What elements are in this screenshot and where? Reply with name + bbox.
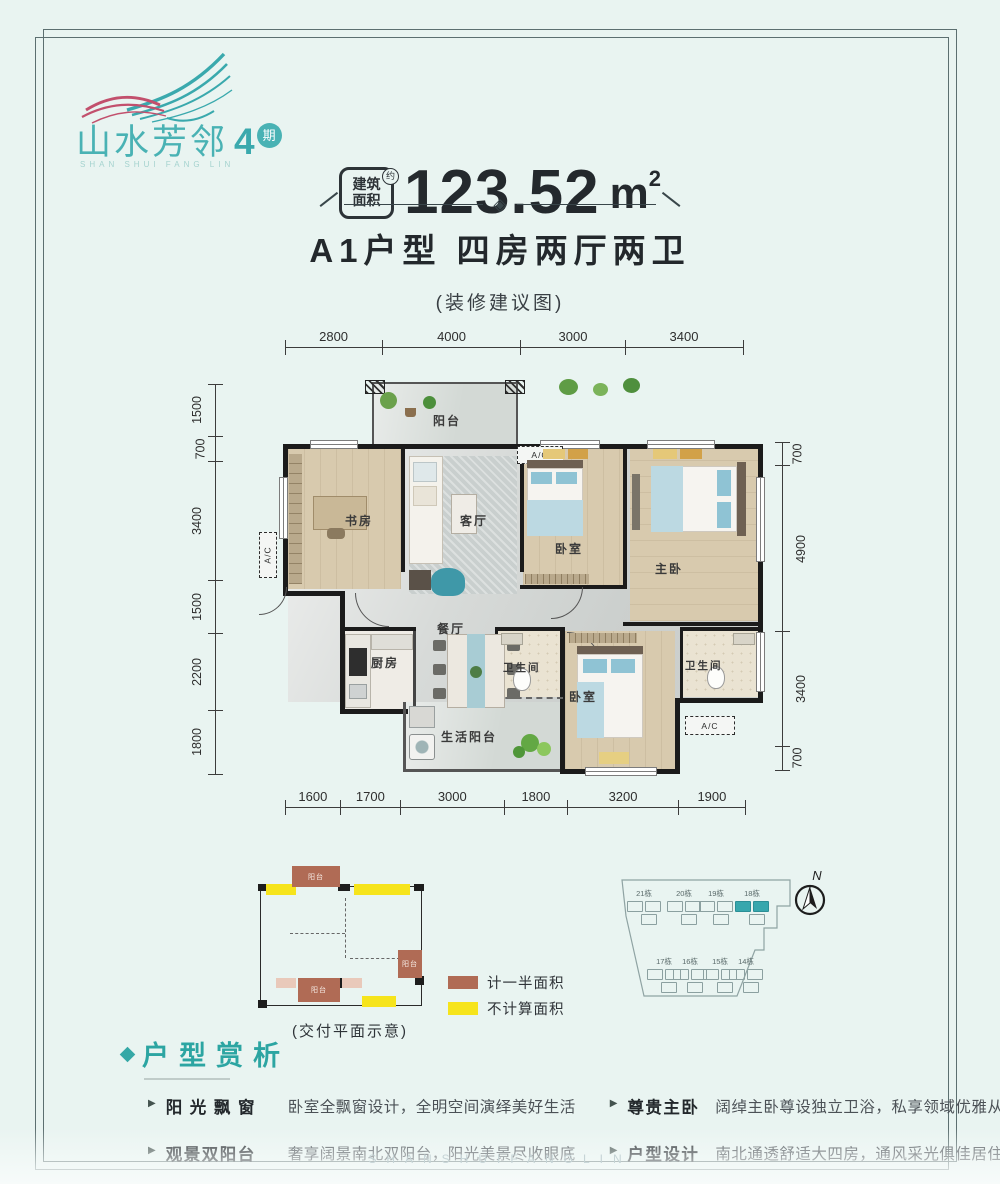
mini-dash bbox=[290, 933, 345, 934]
window bbox=[647, 440, 715, 449]
wall-segment bbox=[340, 709, 408, 714]
cooktop bbox=[349, 648, 367, 676]
room-label-study: 书房 bbox=[345, 512, 373, 529]
mini-yellow-block bbox=[354, 884, 410, 895]
area-unit: m2 bbox=[610, 166, 661, 219]
dining-chair bbox=[433, 688, 446, 699]
room-label-utility: 生活阳台 bbox=[441, 728, 497, 745]
building-cluster-highlighted: 18栋 bbox=[732, 888, 772, 930]
laundry-sink bbox=[409, 706, 435, 728]
approx-mark: 约 bbox=[382, 168, 399, 185]
logo: 山水芳邻4期 SHAN SHUI FANG LIN bbox=[68, 48, 318, 168]
wall-segment bbox=[401, 444, 405, 572]
sofa-cushion bbox=[413, 462, 437, 482]
mini-outline bbox=[260, 886, 422, 1006]
pillow bbox=[717, 470, 731, 496]
plant bbox=[513, 746, 525, 758]
area-value: 123.52 bbox=[404, 157, 600, 228]
mini-wall-block bbox=[414, 884, 424, 891]
blanket bbox=[527, 500, 583, 536]
column bbox=[505, 380, 525, 394]
sink bbox=[733, 633, 755, 645]
plant bbox=[559, 379, 578, 395]
window bbox=[756, 477, 765, 562]
wall-segment bbox=[675, 700, 680, 774]
room-label-kitchen: 厨房 bbox=[371, 654, 399, 671]
wall-segment bbox=[495, 697, 563, 699]
window bbox=[279, 477, 288, 539]
room-label-living: 客厅 bbox=[460, 512, 488, 529]
plant bbox=[423, 396, 436, 409]
bench-pillow bbox=[599, 752, 629, 764]
tv-cabinet bbox=[632, 474, 640, 530]
bed-headboard bbox=[737, 462, 746, 536]
wall-segment bbox=[495, 627, 565, 631]
mini-brown-balcony: 阳台 bbox=[292, 866, 340, 887]
wall-segment bbox=[680, 627, 763, 631]
window bbox=[585, 767, 657, 776]
building-cluster: 14栋 bbox=[726, 956, 766, 998]
feature-item: ▶ 阳 光 飘 窗 卧室全飘窗设计，全明空间演绎美好生活 bbox=[148, 1094, 576, 1118]
centerpiece bbox=[470, 666, 482, 678]
kitchen-sink bbox=[349, 684, 367, 699]
wardrobe bbox=[569, 633, 637, 643]
wall-segment bbox=[283, 591, 345, 596]
legend-no-area: 不计算面积 bbox=[448, 998, 565, 1019]
bay-window-pillow bbox=[680, 449, 702, 459]
mini-brown-balcony: 阳台 bbox=[398, 950, 422, 978]
legend-swatch-yellow bbox=[448, 1002, 478, 1015]
analysis-title: 户型赏析 bbox=[142, 1034, 290, 1073]
plant bbox=[380, 392, 397, 409]
bed-headboard bbox=[577, 646, 643, 654]
mini-pink-block bbox=[276, 978, 296, 988]
room-label-bath2: 卫生间 bbox=[685, 658, 723, 673]
bay-window-pillow bbox=[653, 449, 677, 459]
logo-phase: 4 bbox=[234, 121, 255, 162]
poster-page: 山水芳邻4期 SHAN SHUI FANG LIN 建筑 面积 约 123.52… bbox=[0, 0, 1000, 1184]
sofa-cushion bbox=[413, 486, 437, 506]
room-label-bath1: 卫生间 bbox=[503, 660, 541, 675]
legend-swatch-brown bbox=[448, 976, 478, 989]
room-label-balcony: 阳台 bbox=[433, 412, 461, 429]
unit-title: A1户型 四房两厅两卫 bbox=[309, 232, 690, 269]
area-badge: 建筑 面积 约 bbox=[339, 167, 394, 219]
column bbox=[365, 380, 385, 394]
header: 建筑 面积 约 123.52 m2 bbox=[0, 157, 1000, 228]
wall-segment bbox=[623, 622, 763, 626]
mini-pink-block bbox=[342, 978, 362, 988]
mini-dash bbox=[350, 958, 400, 959]
mini-yellow-block bbox=[362, 996, 396, 1007]
washer bbox=[409, 734, 435, 760]
door-arc bbox=[259, 587, 287, 615]
compass-icon bbox=[793, 883, 827, 917]
desk-chair bbox=[327, 528, 345, 539]
title-underline bbox=[144, 1078, 230, 1080]
wall-segment bbox=[680, 627, 683, 700]
building-cluster: 21栋 bbox=[624, 888, 664, 930]
plan-subtitle: (装修建议图) bbox=[436, 293, 565, 314]
wall-segment bbox=[623, 444, 627, 589]
wall-segment bbox=[413, 627, 416, 712]
ac-unit: A/C bbox=[685, 716, 735, 735]
bookshelf bbox=[289, 454, 302, 584]
pillow bbox=[611, 659, 635, 673]
feature-item: ▶ 尊贵主卧 阔绰主卧尊设独立卫浴，私享领域优雅从容 bbox=[610, 1094, 1000, 1118]
pillow bbox=[583, 659, 607, 673]
dining-chair bbox=[433, 664, 446, 675]
mini-brown-balcony: 阳台 bbox=[298, 978, 340, 1002]
wall-segment bbox=[403, 702, 406, 772]
bay-window-pillow bbox=[543, 449, 565, 459]
pillow bbox=[531, 472, 552, 484]
ornament-line: ◈ bbox=[322, 204, 678, 206]
plant bbox=[623, 378, 640, 393]
kitchen-counter bbox=[371, 634, 413, 650]
window bbox=[310, 440, 358, 449]
site-map: 21栋 20栋 19栋 18栋 17栋 16栋 15栋 14栋 bbox=[612, 868, 872, 1028]
building-cluster: 19栋 bbox=[696, 888, 736, 930]
dims-left: 1500 700 3400 1500 2200 1800 bbox=[196, 384, 220, 774]
dims-top: 2800 4000 3000 3400 bbox=[285, 328, 743, 352]
ac-unit: A/C bbox=[259, 532, 277, 578]
delivery-plan: 阳台 阳台 阳台 (交付平面示意) bbox=[250, 858, 450, 1043]
triangle-bullet-icon: ▶ bbox=[148, 1098, 156, 1109]
legend-half-area: 计一半面积 bbox=[448, 972, 565, 993]
wall-segment bbox=[675, 698, 763, 703]
dims-bottom: 1600 1700 3000 1800 3200 1900 bbox=[285, 788, 745, 812]
wall-segment bbox=[403, 769, 563, 772]
wall-segment bbox=[560, 627, 565, 774]
room-label-bedroom3: 卧室 bbox=[569, 688, 597, 705]
bed-headboard bbox=[527, 460, 583, 468]
mini-dash bbox=[345, 898, 346, 958]
window bbox=[756, 632, 765, 692]
dining-chair bbox=[433, 640, 446, 651]
armchair bbox=[431, 568, 465, 596]
sink bbox=[501, 633, 523, 645]
compass-n-label: N bbox=[804, 868, 830, 883]
pillow bbox=[556, 472, 577, 484]
logo-phase-badge: 期 bbox=[257, 123, 282, 148]
room-label-dining: 餐厅 bbox=[437, 620, 465, 637]
dims-right: 700 4900 3400 700 bbox=[778, 442, 802, 770]
plant-pot bbox=[405, 408, 416, 417]
mini-wall-block bbox=[258, 1000, 267, 1008]
floor-plan: A/C A/C A/C bbox=[255, 382, 763, 774]
watermark: SHANSHUIFANGLIN bbox=[0, 1152, 1000, 1166]
wardrobe bbox=[525, 574, 589, 584]
compass: N bbox=[790, 868, 830, 922]
wall-segment bbox=[340, 627, 416, 631]
balcony-rail bbox=[372, 382, 518, 384]
room-label-bedroom2: 卧室 bbox=[555, 540, 583, 557]
blanket bbox=[651, 466, 683, 532]
side-table bbox=[409, 570, 431, 590]
triangle-bullet-icon: ▶ bbox=[610, 1098, 618, 1109]
plant bbox=[537, 742, 551, 756]
plant bbox=[593, 383, 608, 396]
section-diamond-icon bbox=[120, 1047, 136, 1063]
bay-window-pillow bbox=[568, 449, 588, 459]
room-label-master: 主卧 bbox=[655, 560, 683, 577]
pillow bbox=[717, 502, 731, 528]
